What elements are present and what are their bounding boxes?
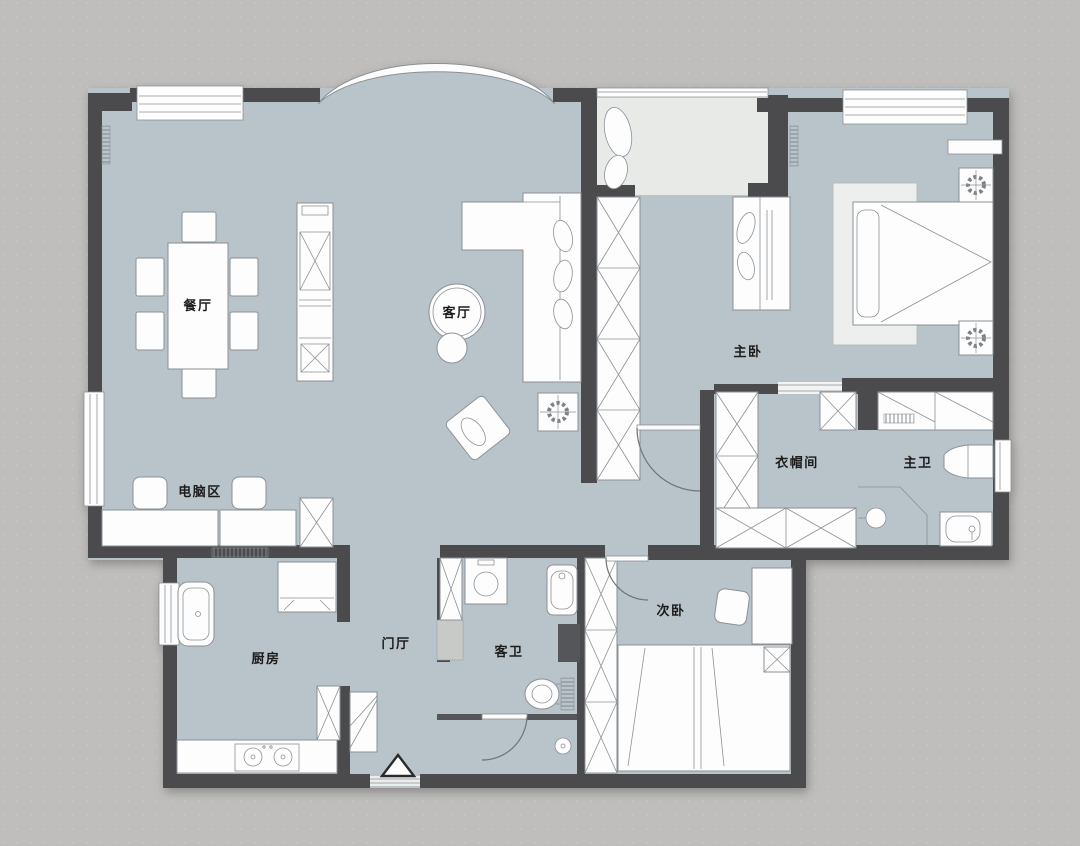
room-label-dining: 餐厅 — [182, 298, 212, 313]
sideboard-cabinet — [297, 203, 333, 381]
room-label-cloakroom: 衣帽间 — [775, 455, 819, 470]
shelf-hatch — [212, 548, 268, 557]
dining-chair — [230, 258, 258, 296]
cabinet — [300, 498, 333, 547]
bath-cabinet — [440, 558, 462, 620]
master-bedroom-window — [843, 90, 967, 124]
room-label-living: 客厅 — [442, 305, 471, 320]
basin-unit — [940, 512, 992, 546]
entry-cabinet — [350, 692, 377, 752]
balcony-window — [597, 88, 768, 97]
kitchen-sink — [178, 582, 214, 646]
bedroom-wardrobe — [733, 197, 790, 310]
desk — [752, 568, 792, 644]
desk — [102, 510, 218, 546]
dining-window — [137, 86, 243, 120]
room-label-computer-area: 电脑区 — [178, 484, 222, 499]
radiator-icon — [790, 126, 798, 166]
fridge — [278, 562, 336, 612]
dining-chair — [182, 212, 216, 242]
nightstand-lamp — [959, 321, 993, 355]
room-label-master-bedroom: 主卧 — [733, 344, 762, 359]
kitchen-cabinet — [317, 686, 340, 740]
floor-drain-icon — [555, 738, 571, 754]
desk-chair — [232, 477, 266, 509]
washing-machine — [465, 558, 507, 604]
toilet — [944, 445, 993, 478]
toilet — [525, 678, 574, 710]
ac-shelf — [948, 140, 1002, 154]
room-label-guest-bath: 客卫 — [494, 644, 523, 659]
desk-chair — [714, 588, 750, 626]
floor-plan-drawing: 餐厅 客厅 主卧 衣帽间 主卫 电脑区 厨房 门厅 客卫 次卧 — [0, 0, 1080, 846]
room-label-foyer: 门厅 — [381, 636, 410, 651]
bath-sink — [547, 565, 577, 615]
corridor-wardrobe — [597, 197, 640, 480]
dining-chair — [230, 312, 258, 350]
nightstand — [764, 647, 790, 672]
desk-chair — [133, 477, 167, 509]
cooktop — [235, 744, 299, 771]
kitchen-window — [159, 583, 179, 645]
master-bath-window — [995, 440, 1011, 492]
room-label-master-bath: 主卫 — [903, 455, 932, 470]
computer-area-window — [84, 392, 104, 506]
entry-threshold — [370, 776, 420, 786]
bedroom2-wardrobe — [585, 558, 617, 773]
nightstand-lamp — [959, 168, 993, 202]
master-bed — [853, 202, 993, 325]
radiator-icon — [102, 126, 110, 164]
pipe-shaft — [437, 620, 463, 660]
room-label-kitchen: 厨房 — [251, 651, 280, 666]
dining-chair — [136, 312, 164, 350]
bath-vanity — [878, 392, 993, 430]
dining-chair — [182, 368, 216, 398]
room-label-second-bedroom: 次卧 — [656, 603, 685, 618]
desk — [220, 510, 296, 546]
floor-vent — [538, 393, 578, 431]
floor-plan-canvas: 餐厅 客厅 主卧 衣帽间 主卫 电脑区 厨房 门厅 客卫 次卧 — [0, 0, 1080, 846]
dining-chair — [136, 258, 164, 296]
